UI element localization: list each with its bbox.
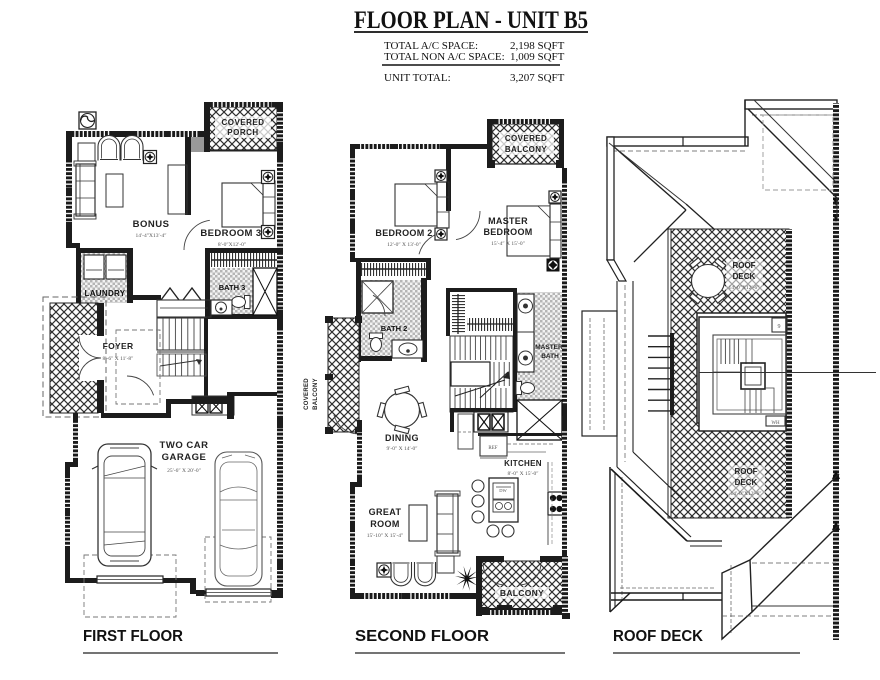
svg-text:BATH 2: BATH 2: [381, 324, 408, 333]
svg-text:COVERED: COVERED: [221, 118, 264, 127]
svg-text:9: 9: [778, 324, 781, 330]
svg-text:BONUS: BONUS: [133, 219, 170, 230]
svg-text:MASTER: MASTER: [535, 344, 563, 351]
svg-text:8′-0″X12′-0″: 8′-0″X12′-0″: [218, 242, 246, 248]
svg-text:PORCH: PORCH: [227, 128, 258, 137]
svg-text:DINING: DINING: [385, 433, 419, 443]
svg-text:15′-10″ X 15′-4″: 15′-10″ X 15′-4″: [367, 533, 404, 539]
svg-text:TOTAL NON A/C SPACE:: TOTAL NON A/C SPACE:: [384, 51, 505, 63]
svg-text:ROOF: ROOF: [732, 261, 755, 270]
svg-text:14′-0″X12′-6″: 14′-0″X12′-6″: [728, 285, 759, 291]
svg-text:GARAGE: GARAGE: [162, 452, 207, 463]
svg-text:BATH: BATH: [541, 353, 559, 360]
svg-text:8′-0″ X 15′-0″: 8′-0″ X 15′-0″: [507, 471, 538, 477]
svg-text:14′-4″X13′-4″: 14′-4″X13′-4″: [135, 233, 166, 239]
svg-text:FLOOR PLAN - UNIT B5: FLOOR PLAN - UNIT B5: [354, 7, 588, 34]
svg-text:BALCONY: BALCONY: [500, 588, 544, 598]
svg-text:1,009 SQFT: 1,009 SQFT: [510, 51, 565, 63]
svg-text:BATH 3: BATH 3: [219, 283, 246, 292]
svg-text:BEDROOM: BEDROOM: [483, 227, 532, 237]
svg-text:14′-0″X12′-6″: 14′-0″X12′-6″: [730, 491, 761, 497]
svg-text:FOYER: FOYER: [103, 341, 134, 351]
svg-text:DW: DW: [499, 488, 507, 493]
svg-text:WH: WH: [771, 421, 780, 426]
svg-text:ROOF: ROOF: [734, 467, 757, 476]
svg-text:BALCONY: BALCONY: [313, 378, 319, 410]
svg-text:3,207 SQFT: 3,207 SQFT: [510, 72, 565, 84]
svg-text:DECK: DECK: [733, 272, 756, 281]
svg-text:ROOF DECK: ROOF DECK: [613, 628, 703, 645]
svg-text:BEDROOM 2: BEDROOM 2: [375, 228, 432, 238]
svg-text:25′-6″ X 20′-0″: 25′-6″ X 20′-0″: [167, 468, 201, 474]
svg-text:MASTER: MASTER: [488, 216, 528, 226]
svg-text:TWO CAR: TWO CAR: [160, 440, 209, 451]
svg-text:15′-4″ X 15′-0″: 15′-4″ X 15′-0″: [491, 241, 525, 247]
svg-text:BEDROOM 3: BEDROOM 3: [200, 228, 261, 239]
svg-text:9′-0″ X 14′-0″: 9′-0″ X 14′-0″: [386, 446, 417, 452]
svg-text:BALCONY: BALCONY: [505, 145, 548, 154]
svg-text:8′-6″ X 11′-8″: 8′-6″ X 11′-8″: [103, 356, 134, 362]
svg-text:DECK: DECK: [735, 478, 758, 487]
svg-text:KITCHEN: KITCHEN: [504, 459, 542, 468]
svg-text:FIRST FLOOR: FIRST FLOOR: [83, 628, 183, 645]
svg-text:GREAT: GREAT: [369, 507, 402, 517]
svg-text:SECOND FLOOR: SECOND FLOOR: [355, 628, 489, 645]
svg-text:UNIT TOTAL:: UNIT TOTAL:: [384, 72, 451, 84]
svg-text:ROOM: ROOM: [370, 519, 400, 529]
svg-text:COVERED: COVERED: [505, 134, 547, 143]
svg-text:COVERED: COVERED: [304, 378, 310, 410]
svg-text:REF: REF: [488, 446, 497, 451]
svg-text:12′-0″ X 13′-0″: 12′-0″ X 13′-0″: [387, 242, 421, 248]
